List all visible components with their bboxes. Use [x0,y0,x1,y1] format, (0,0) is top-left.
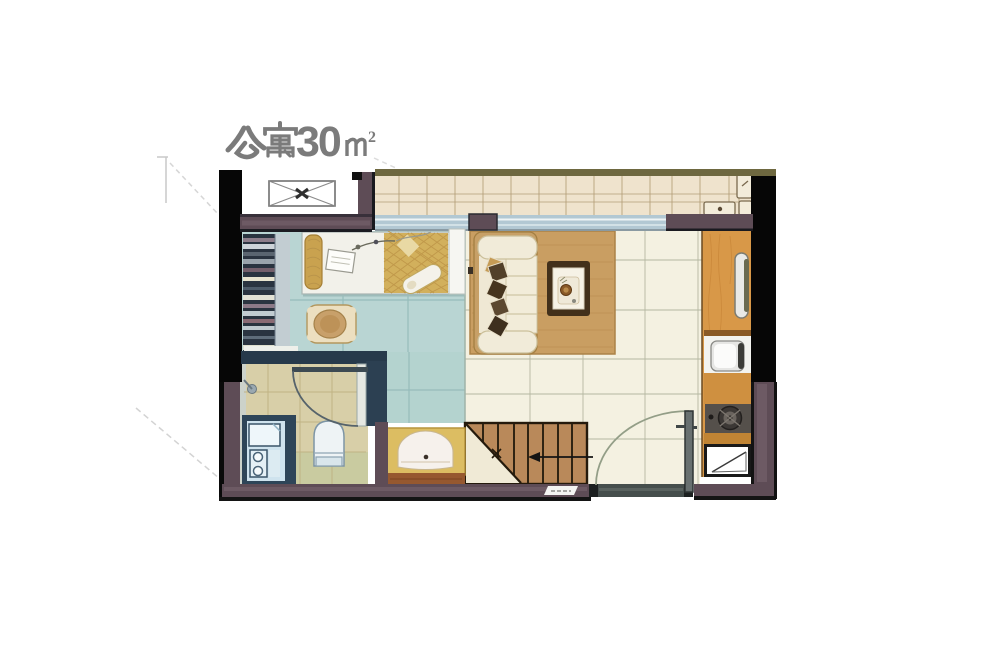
svg-text:2: 2 [368,129,376,146]
svg-text:30: 30 [296,118,341,166]
